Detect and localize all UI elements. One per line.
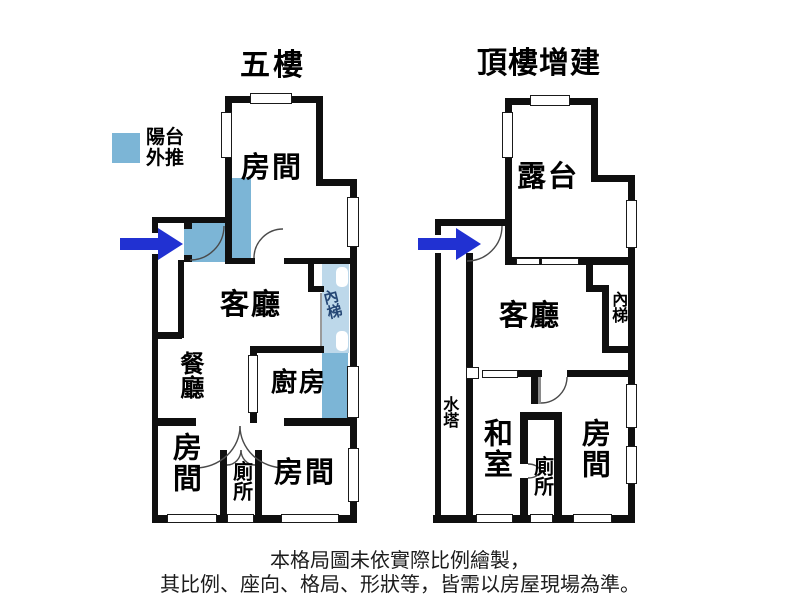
room-label-living-right: 客廳: [499, 300, 561, 331]
window-symbol: [466, 367, 479, 379]
wall: [554, 412, 562, 516]
floor-plan-diagram: 五樓 頂樓增建 陽台外推: [0, 0, 800, 609]
wall: [518, 370, 542, 377]
right-plan-title: 頂樓增建: [477, 48, 601, 80]
legend-label: 陽台外推: [146, 127, 184, 169]
window-symbol: [541, 258, 579, 265]
wall: [152, 254, 158, 523]
wall: [152, 418, 196, 426]
wall: [152, 217, 232, 223]
wall: [435, 219, 509, 226]
room-label-dining: 餐廳: [176, 351, 202, 399]
room-label-stairs-right: 內梯: [610, 291, 627, 323]
stair-tread-mark: [336, 331, 348, 351]
window-symbol: [248, 355, 258, 413]
room-label-water-tank: 水塔: [441, 396, 458, 428]
window-symbol: [348, 448, 359, 502]
legend-balcony-swatch: [112, 133, 140, 163]
room-label-toilet-right: 廁所: [531, 456, 553, 496]
window-symbol: [281, 514, 339, 523]
window-symbol: [530, 95, 570, 106]
room-label-toilet-left: 廁所: [230, 461, 252, 501]
window-symbol: [347, 197, 359, 247]
window-symbol: [626, 200, 637, 248]
window-symbol: [476, 514, 513, 523]
wall: [284, 418, 357, 426]
window-symbol: [227, 514, 254, 523]
window-symbol: [626, 446, 637, 484]
room-label-tatami: 和室: [480, 418, 511, 480]
window-symbol: [573, 514, 612, 523]
wall: [152, 332, 182, 339]
window-symbol: [221, 112, 232, 158]
door-swing-arc: [190, 226, 224, 260]
room-label-bedroom-right: 房間: [578, 418, 609, 480]
wall: [284, 258, 352, 264]
wall: [435, 253, 441, 523]
wall: [602, 290, 609, 353]
room-label-terrace: 露台: [517, 161, 579, 192]
stair-tread-mark: [336, 267, 348, 287]
wall: [602, 346, 635, 353]
entry-arrow-icon: [418, 226, 482, 262]
wall: [520, 412, 528, 464]
window-symbol: [502, 112, 513, 158]
wall: [466, 253, 473, 515]
door-swing-arc: [541, 377, 567, 403]
wall: [225, 258, 255, 264]
window-symbol: [516, 258, 540, 265]
door-swing-arc: [254, 229, 283, 258]
entry-arrow-icon: [120, 226, 184, 262]
disclaimer-line-2: 其比例、座向、格局、形狀等，皆需以房屋現場為準。: [0, 568, 800, 597]
wall: [591, 98, 598, 182]
left-plan-title: 五樓: [240, 50, 306, 82]
room-label-living: 客廳: [220, 289, 282, 320]
wall: [316, 96, 323, 186]
room-label-bedroom-bottom-right: 房間: [274, 457, 336, 488]
window-symbol: [530, 514, 553, 523]
window-symbol: [347, 366, 359, 418]
window-symbol: [626, 384, 637, 428]
room-label-bedroom-bottom-left: 房間: [169, 432, 200, 494]
wall: [178, 260, 184, 338]
wall: [250, 346, 324, 353]
window-symbol: [167, 514, 217, 523]
window-symbol: [250, 93, 292, 104]
left-bedroom-balcony-fill: [231, 178, 251, 264]
sliding-door-symbol: [482, 370, 518, 378]
room-label-bedroom-top: 房間: [241, 152, 303, 183]
wall: [567, 370, 635, 377]
wall: [520, 478, 528, 516]
room-label-kitchen: 廚房: [271, 369, 327, 397]
